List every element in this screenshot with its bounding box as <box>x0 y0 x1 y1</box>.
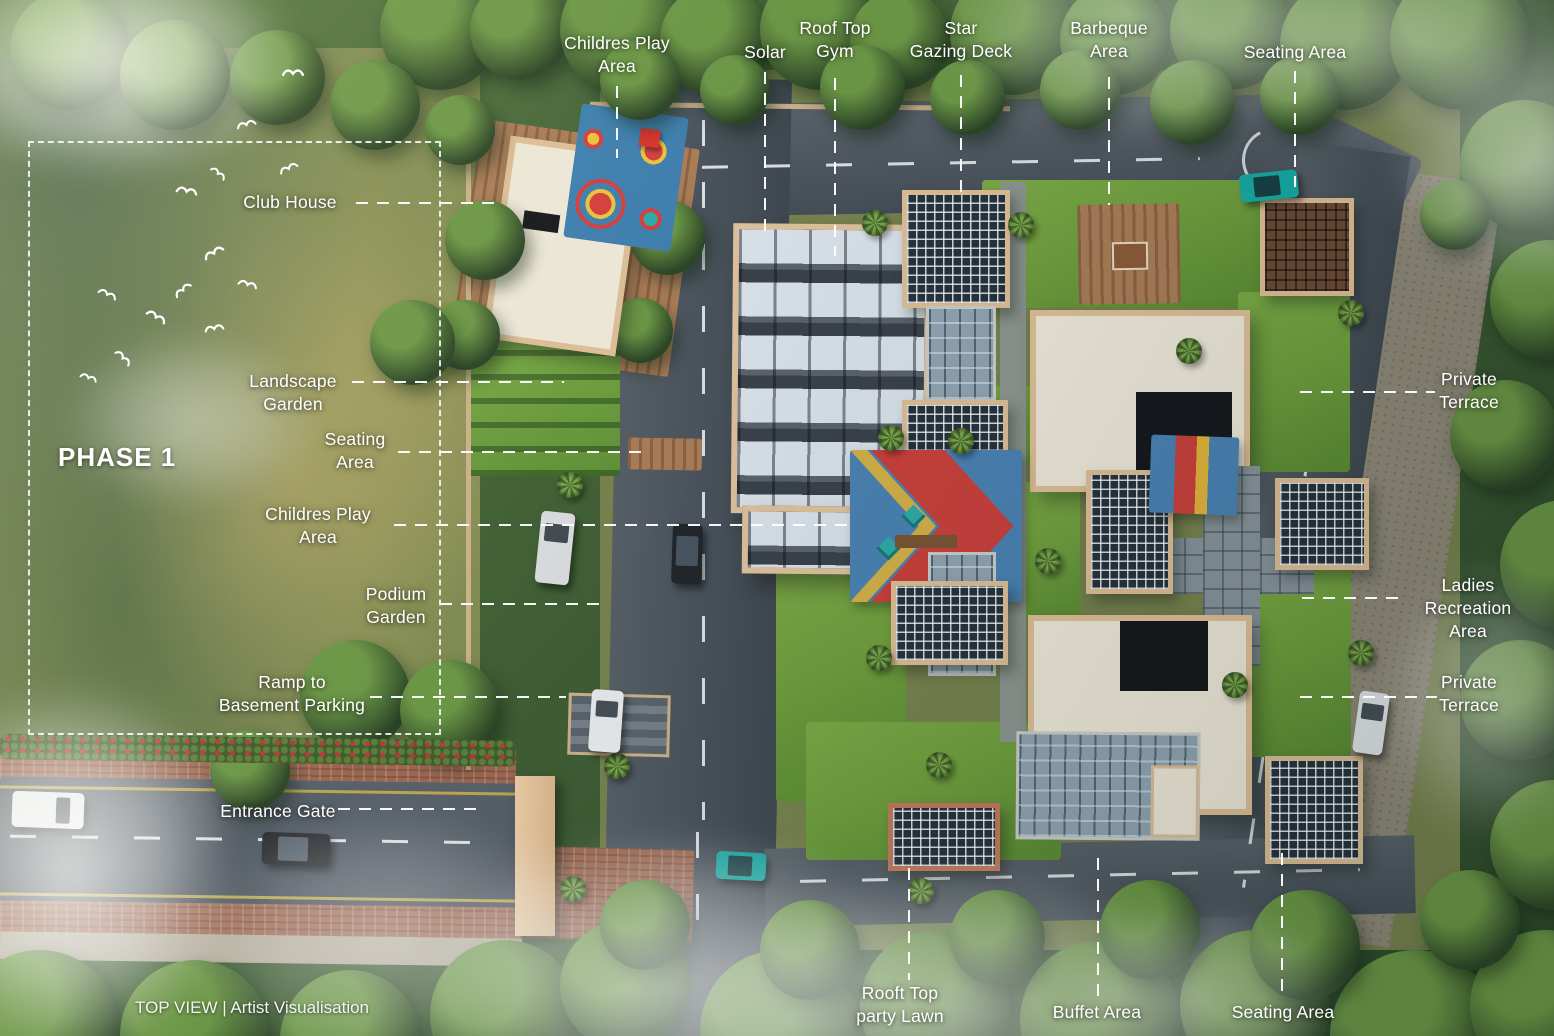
label-podium-garden: Podium Garden <box>366 583 427 629</box>
label-seating-area-top: Seating Area <box>1244 41 1347 64</box>
kids-corner <box>1149 434 1240 515</box>
terrace-deck <box>1265 756 1363 864</box>
label-private-terrace-top: Private Terrace <box>1439 368 1499 414</box>
leader-ladies-recreation <box>1302 597 1404 599</box>
bird-icon <box>282 66 304 77</box>
label-seating-area-bottom: Seating Area <box>1232 1001 1335 1024</box>
palm-tree <box>878 425 904 451</box>
label-roof-top-party-lawn: Rooft Top party Lawn <box>856 982 944 1028</box>
label-buffet-area: Buffet Area <box>1053 1001 1141 1024</box>
site-plan-visualization: PHASE 1 Childres Play Area Solar Roof To… <box>0 0 1554 1036</box>
label-club-house: Club House <box>243 191 336 214</box>
palm-tree <box>866 645 892 671</box>
buffet-pavilion <box>1016 731 1201 841</box>
roof-vent <box>522 210 560 233</box>
leader-private-terrace-bottom <box>1300 696 1437 698</box>
glass-atrium <box>926 306 996 402</box>
palm-tree <box>926 752 952 778</box>
palm-tree <box>1222 672 1248 698</box>
label-roof-top-gym: Roof Top Gym <box>799 17 870 63</box>
palm-tree <box>1008 212 1034 238</box>
label-ramp-basement-parking: Ramp to Basement Parking <box>219 671 365 717</box>
tree <box>700 55 770 125</box>
label-entrance-gate: Entrance Gate <box>220 800 335 823</box>
kids-play-mat <box>563 103 689 252</box>
label-solar: Solar <box>744 41 786 64</box>
seating-pergola <box>1260 198 1354 296</box>
leader-landscape-garden <box>352 381 564 383</box>
palm-tree <box>604 753 630 779</box>
leader-childres-play-left <box>394 524 856 526</box>
leader-barbeque-area <box>1108 77 1110 205</box>
leader-entrance-gate <box>338 808 483 810</box>
landscape-garden-lawn <box>468 338 620 476</box>
leader-seating-area-bottom <box>1281 853 1283 996</box>
car <box>588 689 624 753</box>
leader-childres-play-top <box>616 86 618 158</box>
pavilion-roof <box>1151 765 1200 837</box>
leader-seating-area-left <box>398 451 646 453</box>
amenity-deck <box>891 581 1008 665</box>
label-childres-play-area-top: Childres Play Area <box>564 32 670 78</box>
palm-tree <box>1348 640 1374 666</box>
leader-seating-area-top <box>1294 71 1296 187</box>
palm-tree <box>1035 548 1061 574</box>
label-seating-area-left: Seating Area <box>325 428 386 474</box>
pool-deck <box>1275 478 1369 570</box>
phase1-label: PHASE 1 <box>58 442 176 473</box>
label-ladies-recreation-area: Ladies Recreation Area <box>1425 574 1512 643</box>
private-terrace-lawn <box>1238 292 1350 472</box>
palm-tree <box>862 210 888 236</box>
palm-tree <box>948 428 974 454</box>
label-barbeque-area: Barbeque Area <box>1070 17 1148 63</box>
leader-podium-garden <box>440 603 600 605</box>
tree <box>330 60 420 150</box>
barbeque-deck <box>1077 203 1181 305</box>
leader-solar <box>764 72 766 235</box>
star-gazing-deck <box>902 190 1010 308</box>
play-bench <box>895 535 957 548</box>
leader-club-house <box>356 202 502 204</box>
barbeque-table <box>1112 242 1148 271</box>
label-landscape-garden: Landscape Garden <box>249 370 336 416</box>
label-childres-play-area-left: Childres Play Area <box>265 503 371 549</box>
leader-buffet-area <box>1097 858 1099 998</box>
palm-tree <box>1176 338 1202 364</box>
seating-deck <box>628 437 703 470</box>
palm-tree <box>557 472 583 498</box>
leader-private-terrace-top <box>1300 391 1435 393</box>
leader-roof-top-gym <box>834 78 836 256</box>
tree <box>445 200 525 280</box>
leader-ramp-basement <box>370 696 566 698</box>
label-private-terrace-bottom: Private Terrace <box>1439 671 1499 717</box>
palm-tree <box>1338 300 1364 326</box>
leader-roof-top-party-lawn <box>908 868 910 980</box>
car <box>534 510 575 585</box>
car <box>671 523 703 584</box>
label-star-gazing-deck: Star Gazing Deck <box>910 17 1012 63</box>
roof-notch <box>1120 621 1208 691</box>
caption-top-view: TOP VIEW | Artist Visualisation <box>135 998 369 1018</box>
leader-star-gazing-deck <box>960 75 962 193</box>
play-equipment <box>639 128 661 149</box>
